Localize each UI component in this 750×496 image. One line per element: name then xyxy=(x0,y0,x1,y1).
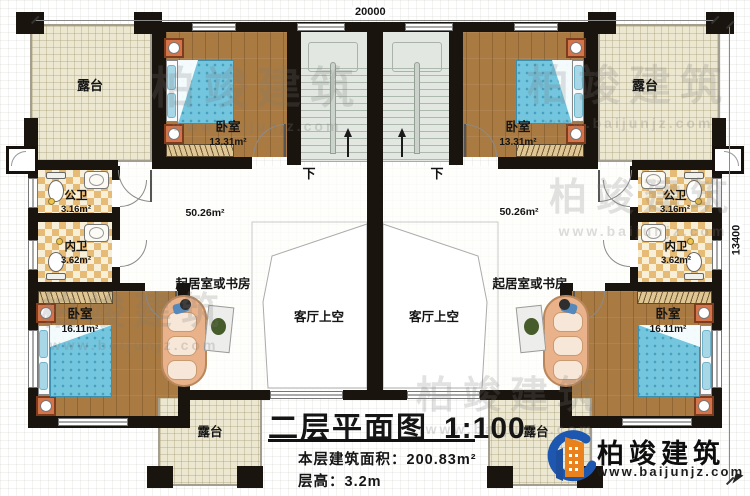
nightstand xyxy=(566,124,586,144)
window xyxy=(28,240,38,270)
central-wall xyxy=(375,22,383,400)
wall xyxy=(152,22,383,32)
column xyxy=(134,12,162,34)
room-name: 卧室 xyxy=(655,307,680,321)
door-gap xyxy=(112,180,120,207)
window xyxy=(297,23,345,31)
wall xyxy=(584,22,598,169)
sofa-cushion xyxy=(553,336,583,356)
column xyxy=(16,12,44,34)
window xyxy=(28,330,38,388)
room-area: 3.62m² xyxy=(661,255,691,266)
toilet-tank xyxy=(684,273,704,280)
room-label-private-bath-r: 内卫 3.62m² xyxy=(661,241,691,266)
nightstand xyxy=(694,396,714,416)
stair-railing xyxy=(330,62,336,154)
person-head xyxy=(180,299,191,310)
ceiling-lamp xyxy=(48,198,55,205)
column xyxy=(147,466,173,488)
nightstand xyxy=(164,38,184,58)
room-area: 16.11m² xyxy=(62,324,99,335)
room-name: 卧室 xyxy=(67,307,92,321)
title-underline xyxy=(268,439,475,442)
bed-pillow xyxy=(39,362,48,390)
wall xyxy=(28,282,120,291)
door-gap xyxy=(630,180,638,207)
wall xyxy=(190,390,270,400)
dimension-top-value: 20000 xyxy=(352,6,389,18)
stair-railing xyxy=(414,62,420,154)
sink xyxy=(641,171,666,189)
sink xyxy=(641,224,666,242)
bed-pillow xyxy=(574,93,583,118)
dimension-line-top xyxy=(35,20,715,21)
stair-edge xyxy=(383,161,449,162)
sofa-cushion xyxy=(553,360,583,380)
window xyxy=(58,418,128,426)
room-label-bedroom-bl: 卧室 16.11m² xyxy=(62,308,99,336)
window xyxy=(712,240,722,270)
window xyxy=(270,391,343,399)
toilet-tank xyxy=(46,273,66,280)
room-name: 公卫 xyxy=(663,190,686,202)
room-label-public-bath-l: 公卫 3.16m² xyxy=(61,190,91,215)
brand-logo-icon xyxy=(542,427,596,489)
wall xyxy=(152,157,252,169)
toilet-tank xyxy=(684,172,704,179)
window xyxy=(514,23,558,31)
potted-plant xyxy=(524,318,539,335)
sofa-cushion xyxy=(553,312,583,332)
wall xyxy=(112,283,145,291)
sofa-cushion xyxy=(167,312,197,332)
nightstand xyxy=(566,38,586,58)
room-name: 内卫 xyxy=(664,241,687,253)
wall xyxy=(287,22,301,165)
sink xyxy=(84,224,109,242)
living-void-r: 客厅上空 xyxy=(409,311,459,325)
bed-pillow xyxy=(39,330,48,358)
stair-direction-arrow-tail xyxy=(347,136,349,157)
door-gap xyxy=(112,240,120,267)
floor-area-value: 200.83m² xyxy=(407,452,477,468)
floor-height-label: 层高： xyxy=(298,474,345,490)
hall-area-r: 50.26m² xyxy=(499,207,538,219)
wall xyxy=(343,390,375,400)
stairs-down-l: 下 xyxy=(302,167,315,181)
bed-pillow xyxy=(167,65,176,90)
stair-direction-arrow-tail xyxy=(401,136,403,157)
room-label-bedroom-tl: 卧室 13.31m² xyxy=(209,121,246,149)
column xyxy=(588,12,616,34)
brand-url: www.baijunjz.com xyxy=(597,464,744,479)
door-leaf xyxy=(150,170,152,202)
ceiling-lamp xyxy=(695,198,702,205)
room-name: 公卫 xyxy=(64,190,87,202)
door-leaf xyxy=(284,124,286,157)
sofa-cushion xyxy=(167,336,197,356)
wall xyxy=(480,390,560,400)
wall-niche xyxy=(6,146,38,174)
wall xyxy=(498,157,598,169)
room-area: 13.31m² xyxy=(209,137,246,148)
wall xyxy=(632,160,722,170)
floor-height-line: 层高：3.2m xyxy=(298,470,382,491)
bed-pillow xyxy=(702,362,711,390)
column xyxy=(487,466,513,488)
room-label-public-bath-r: 公卫 3.16m² xyxy=(660,190,690,215)
room-label-bedroom-tr: 卧室 13.31m² xyxy=(499,121,536,149)
living-study-l: 起居室或书房 xyxy=(175,278,250,292)
bed-pillow xyxy=(574,65,583,90)
door-leaf xyxy=(598,170,600,202)
nightstand xyxy=(36,396,56,416)
room-name: 卧室 xyxy=(215,120,240,134)
nightstand xyxy=(694,303,714,323)
dimension-right-value: 13400 xyxy=(730,222,742,259)
wall-niche xyxy=(712,146,744,174)
room-area: 13.31m² xyxy=(499,137,536,148)
floor-area-line: 本层建筑面积：200.83m² xyxy=(298,448,477,469)
bed-pillow xyxy=(702,330,711,358)
floor-area-label: 本层建筑面积： xyxy=(298,452,407,468)
window xyxy=(712,178,722,208)
room-area: 3.16m² xyxy=(61,204,91,215)
room-label-bedroom-br: 卧室 16.11m² xyxy=(650,308,687,336)
room-area: 3.62m² xyxy=(61,255,91,266)
room-area: 16.11m² xyxy=(650,324,687,335)
door-gap xyxy=(630,240,638,267)
window xyxy=(28,178,38,208)
bed-pillow xyxy=(167,93,176,118)
wall xyxy=(28,160,118,170)
nightstand xyxy=(36,303,56,323)
floor-height-value: 3.2m xyxy=(345,474,382,490)
door-leaf xyxy=(464,124,466,157)
column xyxy=(237,466,263,488)
wall xyxy=(449,22,463,165)
floor-plan-canvas: 20000 13400 柏竣建筑 www.baijunjz.com 柏竣建筑 w… xyxy=(0,0,750,496)
toilet-tank xyxy=(46,172,66,179)
room-name: 卧室 xyxy=(505,120,530,134)
room-area: 3.16m² xyxy=(660,204,690,215)
room-label-terrace-tr: 露台 xyxy=(632,79,658,93)
potted-plant xyxy=(211,318,226,335)
room-label-terrace-bl: 露台 xyxy=(197,426,222,440)
central-wall xyxy=(367,22,375,400)
window xyxy=(622,418,692,426)
sink xyxy=(84,171,109,189)
stairs-down-r: 下 xyxy=(430,167,443,181)
room-label-private-bath-l: 内卫 3.62m² xyxy=(61,241,91,266)
window xyxy=(405,23,453,31)
stair-edge xyxy=(301,161,367,162)
wall xyxy=(630,282,722,291)
person-head xyxy=(559,299,570,310)
room-name: 内卫 xyxy=(64,241,87,253)
window xyxy=(192,23,236,31)
room-label-terrace-tl: 露台 xyxy=(77,79,103,93)
hall-area-l: 50.26m² xyxy=(185,208,224,220)
sofa-cushion xyxy=(167,360,197,380)
nightstand xyxy=(164,124,184,144)
window xyxy=(407,391,480,399)
wall xyxy=(367,22,598,32)
living-study-r: 起居室或书房 xyxy=(492,278,567,292)
wall xyxy=(375,390,407,400)
window xyxy=(712,330,722,388)
living-void-l: 客厅上空 xyxy=(294,311,344,325)
wall xyxy=(605,283,638,291)
